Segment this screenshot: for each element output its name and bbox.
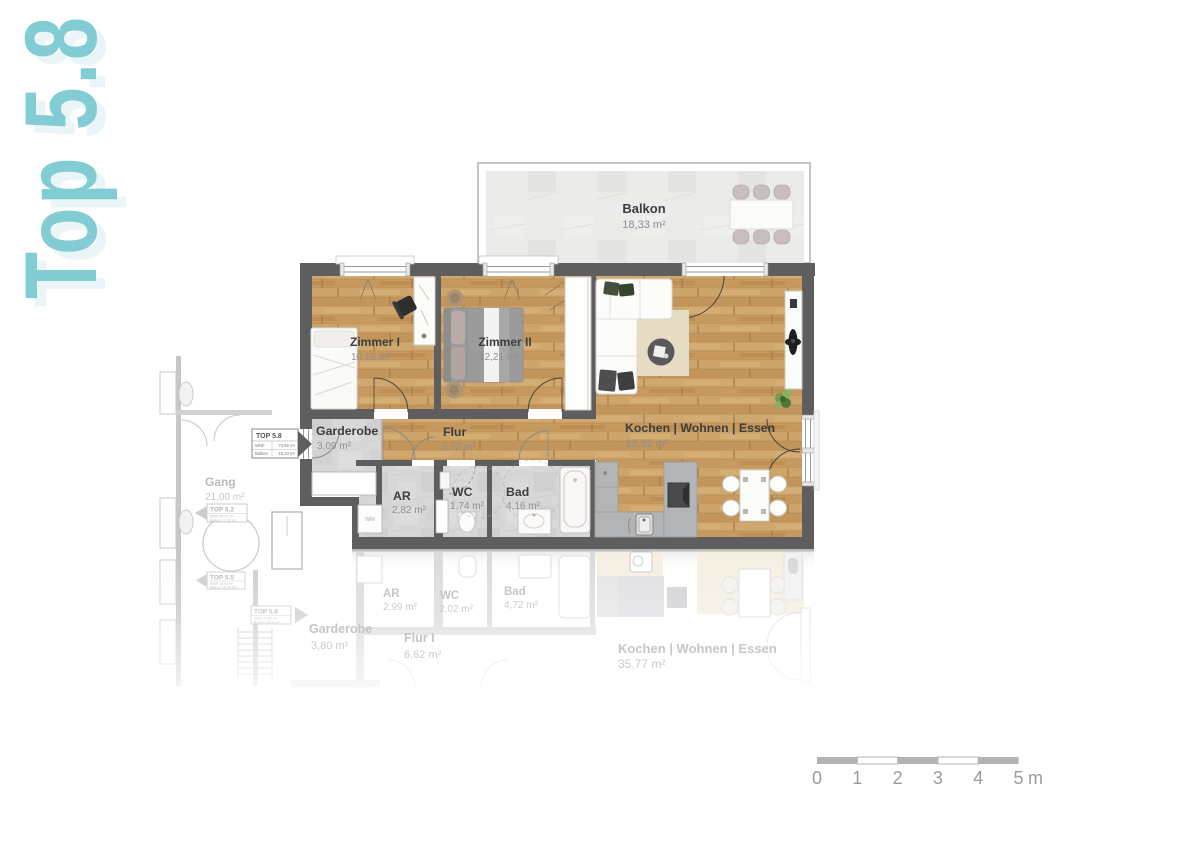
svg-text:Garderobe: Garderobe xyxy=(316,424,378,438)
svg-text:Top 5.8: Top 5.8 xyxy=(5,14,119,299)
svg-text:AR: AR xyxy=(383,588,400,600)
svg-text:TOP 5.8: TOP 5.8 xyxy=(256,433,282,440)
svg-text:3: 3 xyxy=(933,768,943,788)
svg-text:Flur: Flur xyxy=(443,425,466,439)
svg-text:0: 0 xyxy=(812,768,822,788)
svg-text:WNF: WNF xyxy=(255,443,265,448)
svg-text:4: 4 xyxy=(973,768,983,788)
svg-text:35,77 m²: 35,77 m² xyxy=(618,657,665,671)
svg-text:18,33 m²: 18,33 m² xyxy=(622,219,666,231)
svg-text:74,82 m²: 74,82 m² xyxy=(278,443,295,448)
svg-text:1: 1 xyxy=(852,768,862,788)
svg-text:Garderobe: Garderobe xyxy=(309,622,372,636)
svg-text:Bad: Bad xyxy=(504,586,526,598)
svg-text:TOP 5.2: TOP 5.2 xyxy=(210,507,234,514)
svg-text:Kochen | Wohnen | Essen: Kochen | Wohnen | Essen xyxy=(625,421,775,435)
svg-text:12,21 m²: 12,21 m² xyxy=(479,352,519,363)
svg-text:AR: AR xyxy=(393,489,411,503)
svg-text:3,09 m²: 3,09 m² xyxy=(317,441,352,452)
svg-text:Balkon: Balkon xyxy=(255,451,268,456)
svg-text:2: 2 xyxy=(893,768,903,788)
svg-text:m: m xyxy=(1028,768,1043,788)
svg-text:33,82 m²: 33,82 m² xyxy=(625,438,669,450)
svg-text:3,80 m²: 3,80 m² xyxy=(311,640,349,652)
svg-text:1,74 m²: 1,74 m² xyxy=(450,501,485,512)
svg-text:5: 5 xyxy=(1013,768,1023,788)
svg-text:Balkon: Balkon xyxy=(622,201,665,216)
svg-text:2,99 m²: 2,99 m² xyxy=(383,602,418,613)
svg-text:Zimmer II: Zimmer II xyxy=(478,335,531,349)
svg-text:6,62 m²: 6,62 m² xyxy=(404,649,442,661)
svg-text:Gang: Gang xyxy=(205,475,236,489)
svg-text:WM: WM xyxy=(365,517,375,523)
svg-text:Bad: Bad xyxy=(506,485,529,499)
svg-text:4,16 m²: 4,16 m² xyxy=(506,501,541,512)
svg-text:10,16 m²: 10,16 m² xyxy=(351,352,391,363)
svg-text:WC: WC xyxy=(440,590,459,602)
svg-text:Zimmer I: Zimmer I xyxy=(350,335,400,349)
svg-text:18,33 m²: 18,33 m² xyxy=(278,451,295,456)
svg-text:2,82 m²: 2,82 m² xyxy=(392,505,427,516)
svg-text:Balkon 17,06 m²: Balkon 17,06 m² xyxy=(210,518,237,522)
svg-text:Flur I: Flur I xyxy=(404,631,435,645)
svg-text:Kochen | Wohnen | Essen: Kochen | Wohnen | Essen xyxy=(618,641,777,656)
svg-text:2,02 m²: 2,02 m² xyxy=(439,604,474,615)
svg-text:4,72 m²: 4,72 m² xyxy=(504,600,539,611)
svg-text:WC: WC xyxy=(452,485,473,499)
svg-text:21,00 m²: 21,00 m² xyxy=(205,492,245,503)
svg-text:6,62 m²: 6,62 m² xyxy=(442,442,477,453)
